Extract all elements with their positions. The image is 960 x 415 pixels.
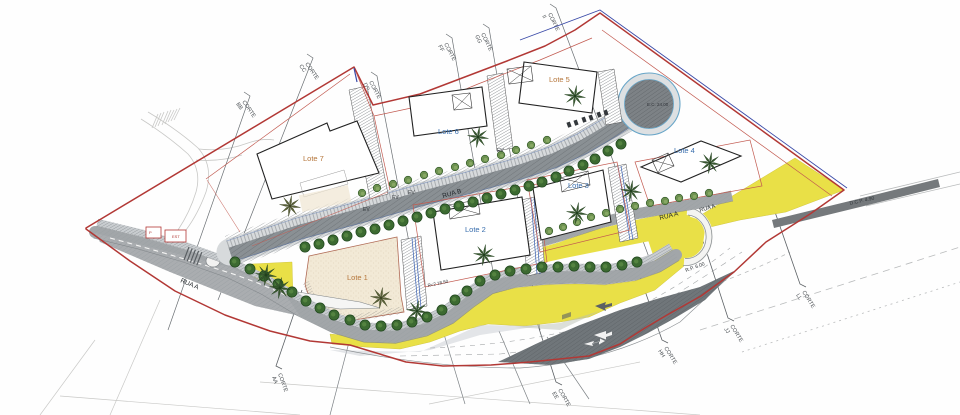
svg-text:Lote 3: Lote 3 <box>568 181 589 190</box>
svg-text:Lote 5: Lote 5 <box>549 75 570 84</box>
svg-text:Lote 6: Lote 6 <box>438 127 459 136</box>
svg-text:EV: EV <box>392 195 399 201</box>
svg-text:Lote 4: Lote 4 <box>674 146 695 155</box>
svg-text:Lote 2: Lote 2 <box>465 225 486 234</box>
svg-text:EV: EV <box>497 148 504 154</box>
svg-text:P: P <box>149 230 152 235</box>
svg-text:Lote 1: Lote 1 <box>347 273 368 282</box>
svg-text:EV: EV <box>408 190 415 196</box>
svg-text:EST: EST <box>172 234 180 239</box>
svg-text:EV: EV <box>363 207 370 213</box>
svg-text:E.C. 24.00: E.C. 24.00 <box>647 102 669 107</box>
svg-text:Lote 7: Lote 7 <box>303 154 324 163</box>
